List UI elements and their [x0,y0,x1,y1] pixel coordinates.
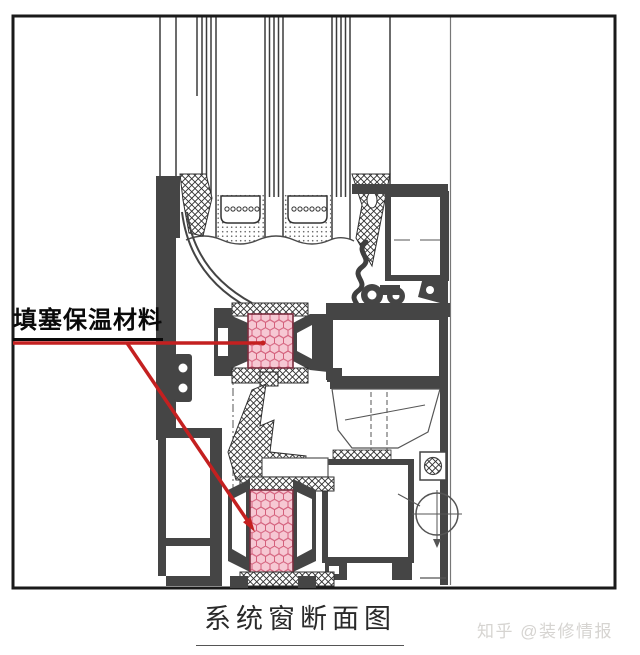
center-gasket [228,372,328,480]
insulation-lower-assembly [228,477,334,588]
insulation-annotation-label: 填塞保温材料 [13,300,163,341]
figure-canvas: 填塞保温材料 系统窗断面图 知乎 @装修情报 [0,0,640,655]
insulation-block-upper [248,314,293,368]
figure-caption-wrap: 系统窗断面图 [150,597,450,646]
insulation-block-lower [250,490,293,573]
watermark: 知乎 @装修情报 [477,617,613,642]
figure-caption: 系统窗断面图 [196,597,404,646]
